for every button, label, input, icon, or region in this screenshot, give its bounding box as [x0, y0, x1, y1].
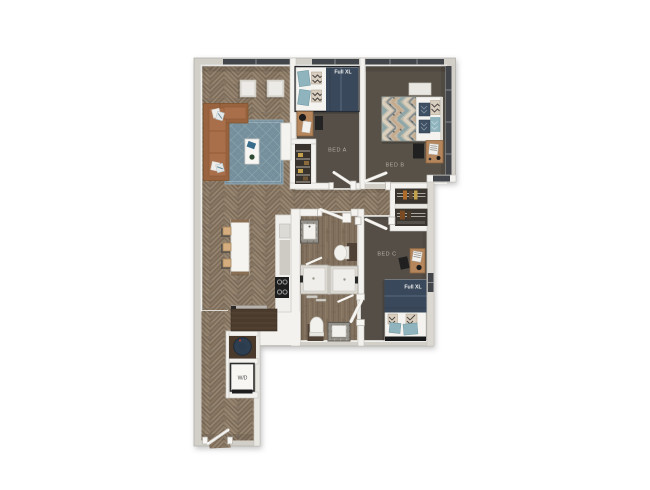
- svg-text:BED C: BED C: [377, 252, 396, 258]
- svg-text:BED B: BED B: [385, 163, 404, 169]
- svg-text:Full XL: Full XL: [404, 285, 422, 291]
- svg-text:BED A: BED A: [328, 148, 347, 154]
- svg-text:W/D: W/D: [238, 376, 248, 382]
- svg-text:Full XL: Full XL: [334, 70, 352, 76]
